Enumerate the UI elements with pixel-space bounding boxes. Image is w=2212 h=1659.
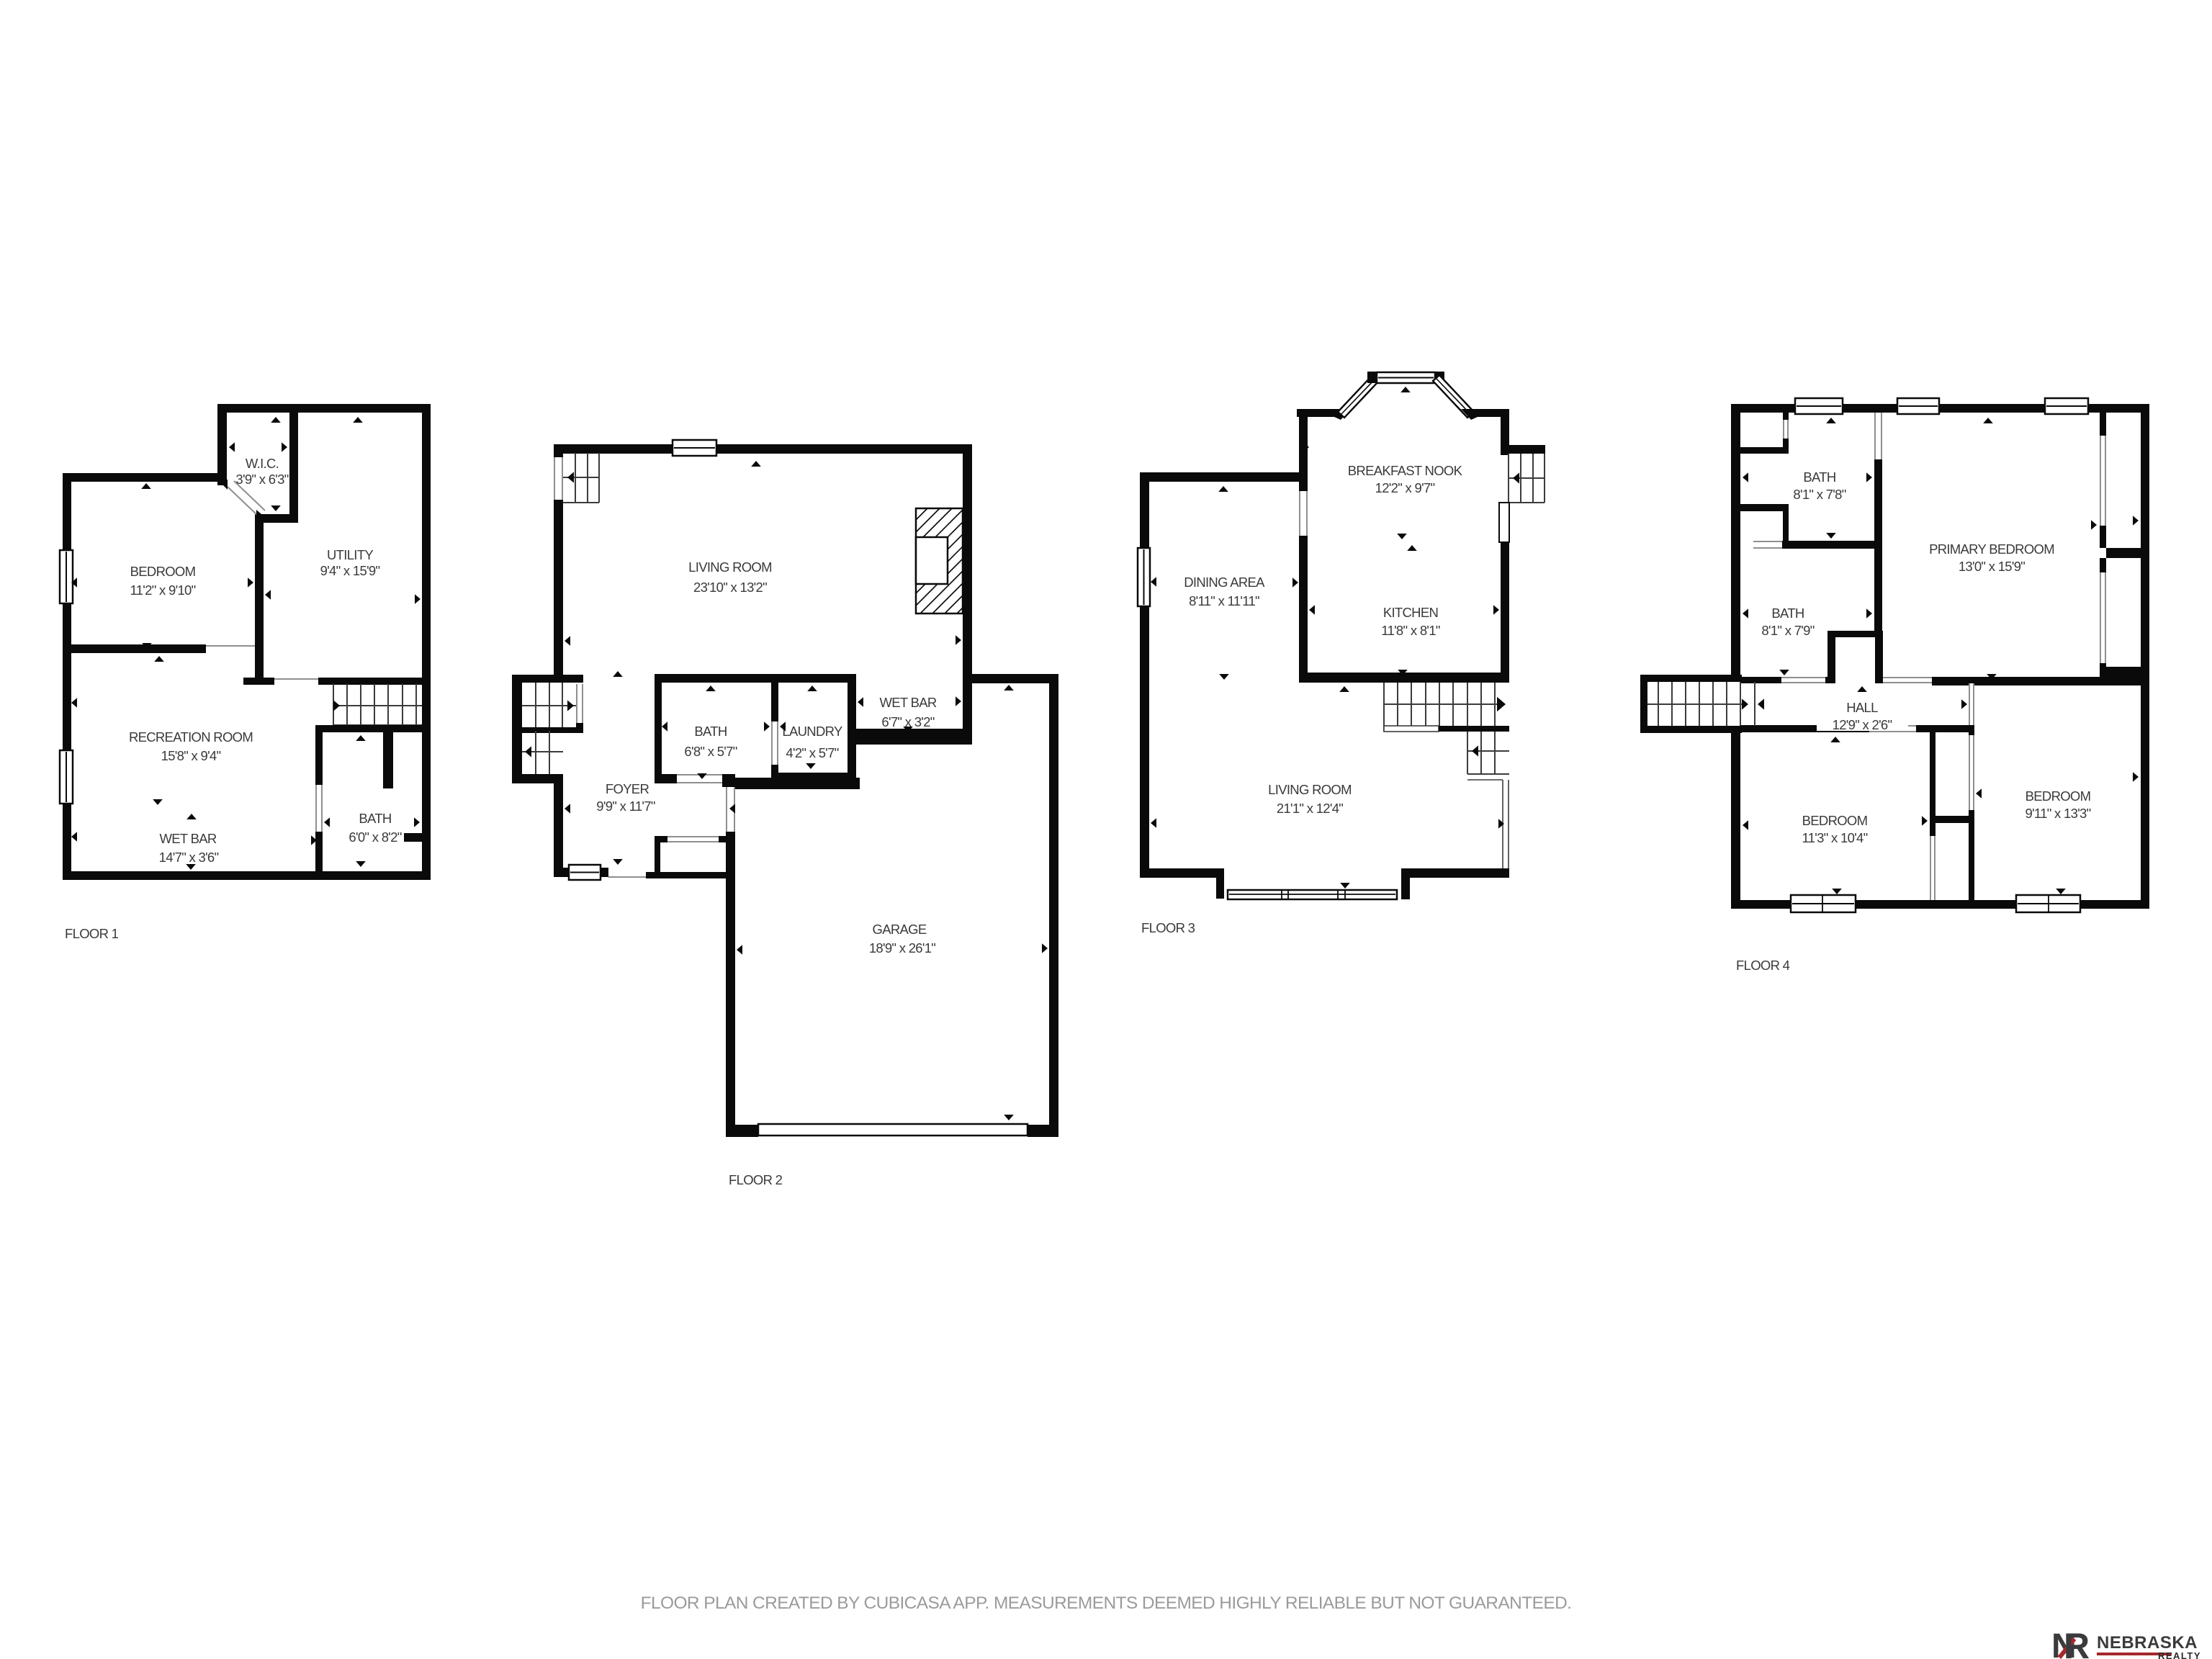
svg-text:HALL: HALL	[1846, 700, 1878, 715]
svg-text:8'1" x 7'8": 8'1" x 7'8"	[1793, 487, 1845, 502]
svg-text:FLOOR 2: FLOOR 2	[729, 1172, 783, 1187]
svg-text:6'8" x 5'7": 6'8" x 5'7"	[684, 744, 737, 759]
svg-text:23'10" x 13'2": 23'10" x 13'2"	[693, 580, 767, 595]
svg-text:11'2" x 9'10": 11'2" x 9'10"	[130, 583, 196, 598]
svg-text:8'11" x 11'11": 8'11" x 11'11"	[1189, 593, 1259, 608]
svg-text:9'11" x 13'3": 9'11" x 13'3"	[2026, 806, 2091, 821]
svg-text:LIVING ROOM: LIVING ROOM	[688, 559, 772, 575]
svg-text:21'1" x 12'4": 21'1" x 12'4"	[1277, 801, 1343, 816]
svg-text:12'9" x 2'6": 12'9" x 2'6"	[1833, 717, 1892, 732]
svg-text:PRIMARY BEDROOM: PRIMARY BEDROOM	[1929, 541, 2054, 557]
svg-text:12'2" x 9'7": 12'2" x 9'7"	[1375, 480, 1435, 495]
svg-text:14'7" x 3'6": 14'7" x 3'6"	[159, 850, 219, 865]
svg-text:BEDROOM: BEDROOM	[1802, 813, 1868, 828]
svg-text:KITCHEN: KITCHEN	[1383, 605, 1438, 620]
svg-text:R: R	[2064, 1626, 2090, 1659]
svg-text:RECREATION ROOM: RECREATION ROOM	[129, 729, 253, 745]
svg-text:6'0" x 8'2": 6'0" x 8'2"	[349, 829, 401, 845]
svg-text:13'0" x 15'9": 13'0" x 15'9"	[1959, 559, 2025, 574]
svg-text:FLOOR 4: FLOOR 4	[1736, 958, 1790, 973]
svg-text:NEBRASKA: NEBRASKA	[2097, 1633, 2198, 1653]
svg-text:BATH: BATH	[1771, 606, 1804, 621]
svg-text:UTILITY: UTILITY	[327, 547, 373, 562]
svg-text:LAUNDRY: LAUNDRY	[782, 724, 842, 739]
svg-text:BATH: BATH	[1803, 469, 1835, 485]
svg-text:BEDROOM: BEDROOM	[2026, 788, 2091, 804]
svg-text:FOYER: FOYER	[606, 781, 649, 796]
svg-text:9'4" x 15'9": 9'4" x 15'9"	[320, 563, 380, 578]
svg-text:GARAGE: GARAGE	[873, 922, 927, 937]
svg-text:4'2" x 5'7": 4'2" x 5'7"	[786, 745, 838, 760]
svg-text:18'9" x 26'1": 18'9" x 26'1"	[869, 940, 935, 956]
svg-text:9'9" x 11'7": 9'9" x 11'7"	[596, 799, 655, 814]
svg-text:WET BAR: WET BAR	[159, 831, 216, 846]
svg-text:8'1" x 7'9": 8'1" x 7'9"	[1761, 623, 1814, 638]
svg-text:BATH: BATH	[359, 811, 391, 826]
svg-text:11'3" x 10'4": 11'3" x 10'4"	[1802, 830, 1868, 845]
svg-text:FLOOR 3: FLOOR 3	[1141, 920, 1195, 935]
svg-text:11'8" x 8'1": 11'8" x 8'1"	[1381, 623, 1440, 638]
svg-text:BREAKFAST NOOK: BREAKFAST NOOK	[1348, 463, 1463, 478]
svg-text:REALTY: REALTY	[2158, 1650, 2201, 1659]
svg-text:LIVING ROOM: LIVING ROOM	[1268, 782, 1352, 797]
svg-text:BATH: BATH	[694, 724, 727, 739]
svg-text:15'8" x 9'4": 15'8" x 9'4"	[161, 748, 221, 763]
svg-text:FLOOR PLAN CREATED BY CUBICASA: FLOOR PLAN CREATED BY CUBICASA APP. MEAS…	[641, 1593, 1572, 1613]
svg-text:BEDROOM: BEDROOM	[130, 564, 196, 579]
svg-text:FLOOR 1: FLOOR 1	[65, 926, 119, 941]
svg-text:WET BAR: WET BAR	[879, 695, 936, 710]
svg-text:W.I.C.: W.I.C.	[246, 456, 279, 471]
svg-text:3'9" x 6'3": 3'9" x 6'3"	[235, 472, 288, 487]
svg-text:DINING AREA: DINING AREA	[1184, 575, 1265, 590]
